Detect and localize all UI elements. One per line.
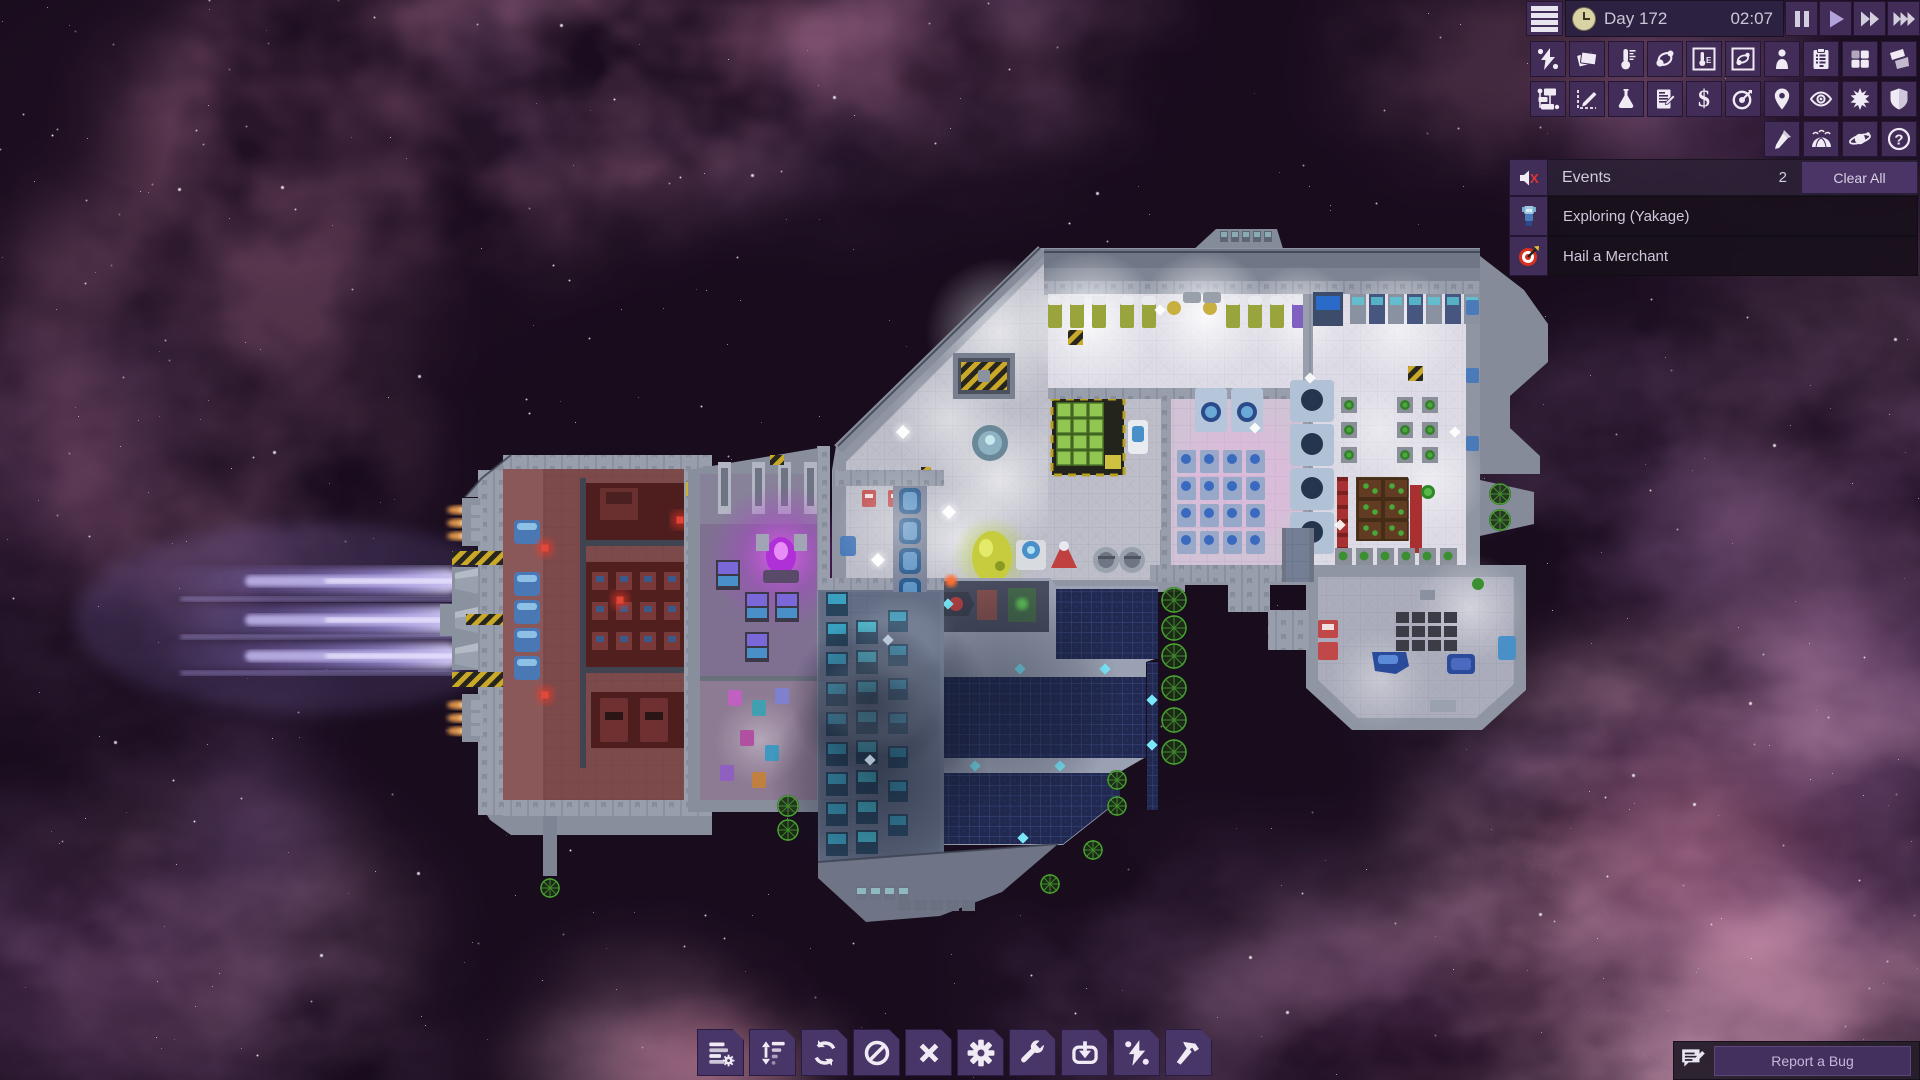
svg-text:E: E: [1706, 56, 1712, 65]
svg-text:?: ?: [1894, 132, 1903, 149]
svg-text:$: $: [1698, 87, 1710, 111]
svg-text:X: X: [1530, 171, 1539, 186]
